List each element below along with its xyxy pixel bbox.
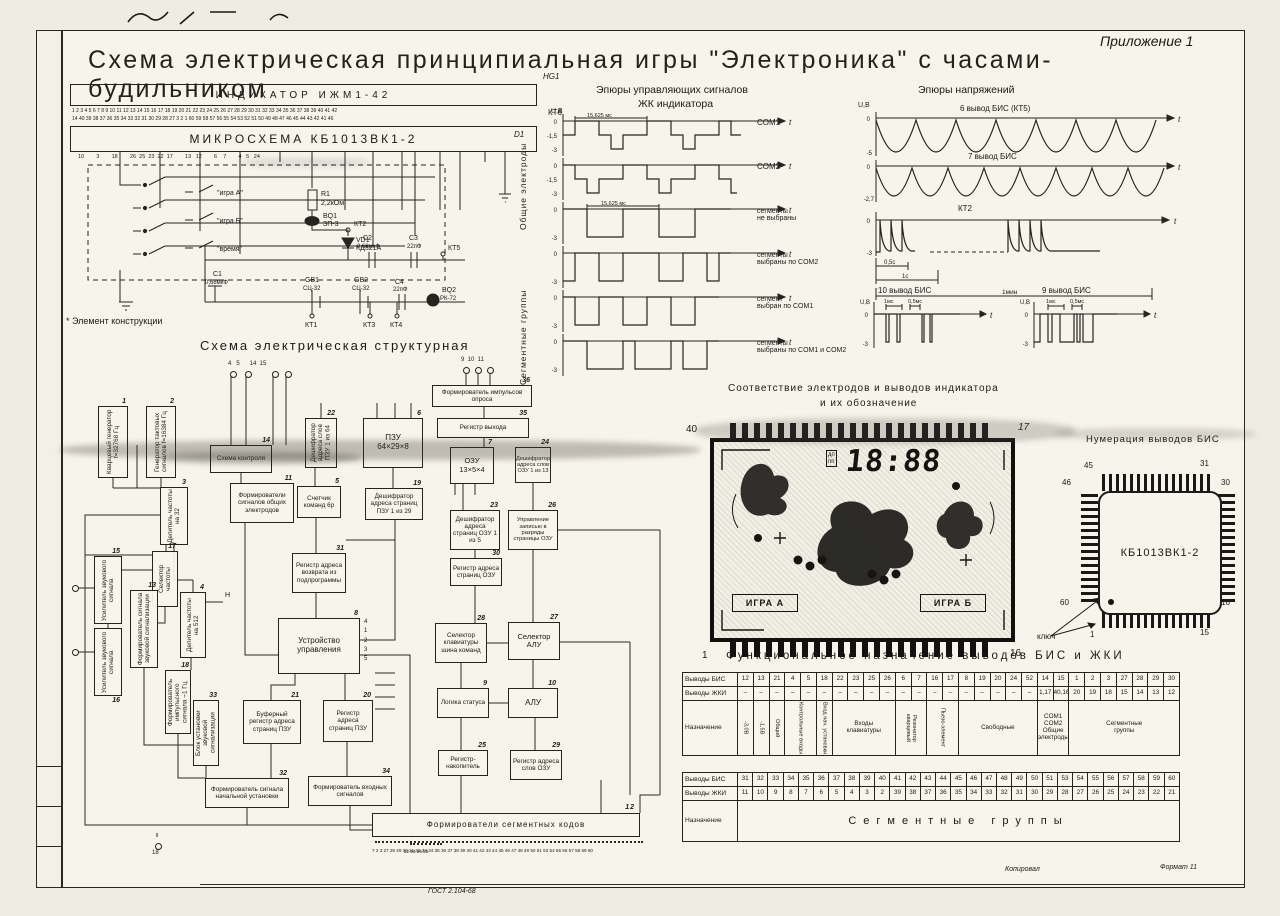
block-accumulator-register: 25Регистр-накопитель bbox=[438, 750, 488, 776]
block-input-signal-former: 34Формирователь входных сигналов bbox=[308, 776, 392, 806]
svg-text:-2,7: -2,7 bbox=[864, 197, 875, 203]
lcd-top-pins bbox=[730, 423, 992, 439]
block-ram-write-control: 26Управление записью в разряды страницы … bbox=[508, 510, 558, 550]
volt-row5-title: 9 вывод БИС bbox=[1042, 286, 1091, 295]
terminal bbox=[72, 585, 79, 592]
svg-text:0: 0 bbox=[554, 120, 558, 126]
terminal bbox=[285, 371, 292, 378]
c1-value: 0,68мкФ bbox=[205, 280, 228, 286]
volt-row4-title: 10 вывод БИС bbox=[878, 286, 931, 295]
volt-row5-wave: U,В 0 -3 1мс 0,5мс t bbox=[1018, 296, 1178, 354]
period-annotation: 15,625 мс bbox=[601, 201, 626, 207]
mark-1s: 1с bbox=[902, 274, 908, 280]
kt1-label: КТ1 bbox=[305, 322, 317, 329]
waveform-label: сегменты не выбраны bbox=[757, 208, 867, 222]
block-clock-generator: 2Генератор тактовых сигналов f=16384 Гц bbox=[146, 406, 176, 478]
terminal bbox=[230, 371, 237, 378]
chip-pin-numbers: 10 3 18 26 25 23 22 17 13 12 6 7 4 5 24 bbox=[78, 154, 518, 160]
svg-text:-3: -3 bbox=[552, 148, 558, 154]
footer-rule bbox=[200, 884, 1245, 885]
svg-text:-3: -3 bbox=[552, 368, 558, 374]
function-table-title: Функциональное назначение выводов БИС и … bbox=[726, 650, 1125, 662]
waveform-label: COM2 bbox=[757, 162, 867, 171]
top-pin-labels: 4 5 14 15 bbox=[228, 361, 266, 367]
svg-text:t: t bbox=[1178, 163, 1181, 172]
block-divider-32: 3Делитель частоты на 32 bbox=[160, 487, 188, 545]
chip-part-number: КБ1013ВК1-2 bbox=[1121, 547, 1200, 559]
pin-function-table-2: Выводы БИС313233343536373839404142434445… bbox=[682, 772, 1180, 842]
common-electrodes-axis-label: Общие электроды bbox=[518, 125, 528, 230]
bq2-ref: BQ2 bbox=[442, 287, 456, 294]
svg-text:0: 0 bbox=[554, 340, 558, 346]
block-buffer-page-register: 21Буферный регистр адреса страниц ПЗУ bbox=[243, 700, 301, 744]
ctrl-waves-title2: ЖК индикатора bbox=[638, 98, 713, 110]
terminal bbox=[245, 371, 252, 378]
lcd-indicator-body: дп пп 18:88 ИГРА А ИГРА Б bbox=[710, 438, 1015, 642]
r1-ref: R1 bbox=[321, 191, 330, 198]
chip-numbering-title: Нумерация выводов БИС bbox=[1086, 434, 1220, 445]
kt4-label: КТ4 bbox=[390, 322, 402, 329]
c4-ref: C4 bbox=[395, 279, 404, 286]
chip-pin-30: 30 bbox=[1221, 478, 1230, 487]
volt-waves-yaxis: U,В bbox=[858, 102, 870, 109]
block-alarm-setting: 33Блок установки звуковой сигнализации bbox=[193, 700, 219, 766]
principal-circuit-canvas: "игра А" "игра Б" "время" R1 2,2кОм BQ1 … bbox=[65, 150, 545, 330]
svg-text:t: t bbox=[990, 311, 993, 320]
chip-key-dot bbox=[1108, 599, 1114, 605]
period-annotation: 15,625 мс bbox=[587, 113, 612, 119]
volt-row3-title: КТ2 bbox=[958, 204, 972, 213]
c3-value: 22пФ bbox=[407, 244, 422, 250]
block-reset-signal-former: 32Формирователь сигнала начальной устано… bbox=[205, 778, 289, 808]
lcd-game-b-label: ИГРА Б bbox=[920, 594, 986, 612]
indicator-pin-row-bottom: 14 40 39 38 37 36 35 34 33 32 31 30 29 2… bbox=[72, 116, 534, 122]
block-rom-page-register: 20Регистр адреса страниц ПЗУ bbox=[323, 700, 373, 742]
block-alu: 10АЛУ bbox=[508, 688, 558, 718]
svg-text:0: 0 bbox=[1025, 313, 1029, 319]
mark-1ms: 1мс bbox=[1046, 299, 1056, 305]
terminal bbox=[475, 367, 482, 374]
lcd-pin-40: 40 bbox=[686, 424, 697, 435]
terminal-row bbox=[410, 843, 442, 845]
svg-text:-1,5: -1,5 bbox=[547, 178, 558, 184]
construction-note: * Элемент конструкции bbox=[66, 316, 162, 326]
block-return-address-register: 31Регистр адреса возврата из подпрограмм… bbox=[292, 553, 346, 593]
block-rom: 6ПЗУ 64×29×8 bbox=[363, 418, 423, 468]
mark-1min: 1мин bbox=[1002, 289, 1018, 296]
gb1-value: СЦ-32 bbox=[303, 286, 321, 292]
block-alu-selector: 27Селектор АЛУ bbox=[508, 622, 560, 660]
lcd-game-a-label: ИГРА А bbox=[732, 594, 798, 612]
bq1-value: ЗП-3 bbox=[323, 221, 339, 228]
volt-row1-wave: 0 -5 t bbox=[862, 110, 1197, 158]
chip-pin-60: 60 bbox=[1060, 598, 1069, 607]
block-rom-word-decoder: 22Дешифратор адреса слов ПЗУ 1 из 64 bbox=[305, 418, 337, 468]
lcd-pin-1: 1 bbox=[702, 650, 708, 661]
block-divider-512: 4Делитель частоты на 512 bbox=[180, 592, 206, 658]
bq1-ref: BQ1 bbox=[323, 213, 337, 220]
block-control-unit: 8Устройство управления bbox=[278, 618, 360, 674]
c4-value: 22пФ bbox=[393, 287, 408, 293]
svg-text:-1,5: -1,5 bbox=[547, 134, 558, 140]
svg-text:0: 0 bbox=[554, 296, 558, 302]
chip-pins-top bbox=[1102, 474, 1214, 491]
format-label: Формат 11 bbox=[1160, 864, 1197, 871]
c2-value: 0,68мкФ bbox=[357, 244, 380, 250]
pin18-label: 18 bbox=[152, 850, 159, 856]
mark-1ms: 1мс bbox=[884, 299, 894, 305]
svg-text:-3: -3 bbox=[552, 324, 558, 330]
volt-row2-wave: 0 -2,7 t bbox=[862, 158, 1197, 204]
switch-label-game-b: "игра Б" bbox=[217, 218, 243, 225]
svg-text:0: 0 bbox=[554, 252, 558, 258]
terminal bbox=[155, 843, 162, 850]
chip-pin-31: 31 bbox=[1200, 459, 1209, 468]
switch-label-time: "время" bbox=[217, 246, 243, 253]
terminal-row bbox=[375, 841, 643, 843]
terminal bbox=[272, 371, 279, 378]
block-ram-page-decoder: 23Дешифратор адреса страниц ОЗУ 1 из 5 bbox=[450, 510, 500, 550]
ctrl-waves-yaxis: U,В bbox=[551, 108, 563, 115]
lcd-pin-17: 17 bbox=[1018, 422, 1029, 433]
volt-waves-title: Эпюры напряжений bbox=[918, 84, 1015, 96]
correspondence-title1: Соответствие электродов и выводов индика… bbox=[728, 383, 999, 394]
lcd-mode-indicator: дп пп bbox=[826, 450, 837, 467]
chip-key-label: ключ bbox=[1037, 632, 1055, 641]
block-ram-word-decoder: 24Дешифратор адреса слов ОЗУ 1 из 13 bbox=[515, 447, 551, 483]
svg-text:0: 0 bbox=[554, 208, 558, 214]
c2-ref: C2 bbox=[363, 235, 372, 242]
correspondence-title2: и их обозначение bbox=[820, 398, 917, 409]
margin-divider bbox=[36, 846, 62, 847]
block-command-counter: 5Счетчик команд 6р bbox=[297, 486, 341, 518]
block-keyboard-selector: 28Селектор клавиатуры шина команд bbox=[435, 623, 487, 663]
terminal bbox=[72, 649, 79, 656]
gb2-ref: GB2 bbox=[354, 277, 368, 284]
block-quartz-generator: 1Кварцевый генератор f=32768 Гц bbox=[98, 406, 128, 478]
volt-row2-title: 7 вывод БИС bbox=[968, 152, 1017, 161]
block-audio-amplifier-2: 16Усилитель звукового сигнала bbox=[94, 628, 122, 696]
block-control-circuit: 14Схема контроля bbox=[210, 445, 272, 473]
svg-text:-3: -3 bbox=[552, 236, 558, 242]
terminal bbox=[463, 367, 470, 374]
block-output-register: 35Регистр выхода bbox=[437, 418, 529, 438]
ctrl-waves-title1: Эпюры управляющих сигналов bbox=[596, 84, 748, 96]
h-signal-label: Н bbox=[225, 592, 230, 599]
lcd-clock-digits: 18:88 bbox=[844, 444, 943, 479]
c3-ref: C3 bbox=[409, 235, 418, 242]
block-ram: 7ОЗУ 13×5×4 bbox=[450, 447, 494, 484]
chip-pin-16: 16 bbox=[1221, 598, 1230, 607]
right-pin-labels: 4 1 2 3 5 bbox=[364, 618, 367, 664]
gost-label: ГОСТ 2.104-68 bbox=[428, 888, 476, 895]
mark-05ms: 0,5мс bbox=[1070, 299, 1084, 305]
r1-value: 2,2кОм bbox=[321, 200, 344, 207]
mark-05s: 0,5с bbox=[884, 260, 895, 266]
svg-text:0: 0 bbox=[867, 165, 871, 171]
waveform-label: сегменты выбраны по COM2 bbox=[757, 252, 877, 266]
block-ram-page-register: 30Регистр адреса страниц ОЗУ bbox=[450, 558, 502, 586]
volt-row1-title: 6 вывод БИС (КТ5) bbox=[960, 104, 1030, 113]
waveform-label: сегменты выбраны по COM1 и COM2 bbox=[757, 340, 882, 354]
svg-text:0: 0 bbox=[554, 164, 558, 170]
mid-pin-labels: 9 10 11 bbox=[461, 357, 484, 363]
switch-label-game-a: "игра А" bbox=[217, 190, 243, 197]
indicator-pin-row-top: 1 2 3 4 5 6 7 8 9 10 11 12 13 14 15 16 1… bbox=[72, 108, 534, 114]
kt2-label: КТ2 bbox=[354, 221, 366, 228]
indicator-refdes: HG1 bbox=[543, 72, 559, 81]
copied-by-label: Копировал bbox=[1005, 866, 1040, 873]
svg-text:-5: -5 bbox=[867, 151, 873, 157]
svg-text:U,В: U,В bbox=[1020, 300, 1030, 306]
chip-pins-left bbox=[1081, 494, 1098, 606]
structural-title: Схема электрическая структурная bbox=[200, 338, 470, 353]
svg-text:-3: -3 bbox=[1023, 342, 1029, 348]
bq2-value: РК-72 bbox=[440, 296, 457, 302]
margin-divider bbox=[36, 766, 62, 767]
svg-text:t: t bbox=[1174, 217, 1177, 226]
block-status-logic: 9Логика статуса bbox=[437, 688, 489, 718]
svg-text:t: t bbox=[1178, 115, 1181, 124]
terminal bbox=[487, 367, 494, 374]
chip-body: КБ1013ВК1-2 bbox=[1098, 491, 1222, 615]
chip-pin-45: 45 bbox=[1084, 461, 1093, 470]
block-1hz-pulse-former: 18Формирователь импульсного сигнала ~1 Г… bbox=[165, 670, 191, 734]
block-common-electrode-formers: 11Формирователи сигналов общих электродо… bbox=[230, 483, 294, 523]
svg-text:0: 0 bbox=[865, 313, 869, 319]
block-audio-amplifier-1: 15Усилитель звукового сигнала bbox=[94, 556, 122, 624]
waveform-label: сегмент выбран по COM1 bbox=[757, 296, 877, 310]
block-poll-pulse-former: 36Формирователь импульсов опроса bbox=[432, 385, 532, 407]
bottom-pin-labels: 7 2 3 27 28 29 30 31 32 33 34 35 36 37 3… bbox=[372, 848, 646, 853]
svg-text:-3: -3 bbox=[552, 192, 558, 198]
block-sound-signal-former: 13Формирователь сигнала звуковой сигнали… bbox=[130, 590, 158, 668]
mark-05ms: 0,5мс bbox=[908, 299, 922, 305]
svg-text:-3: -3 bbox=[552, 280, 558, 286]
kt5-label: КТ5 bbox=[448, 245, 460, 252]
waveform-label: COM1 bbox=[757, 118, 867, 127]
svg-text:0: 0 bbox=[867, 117, 871, 123]
chip-pin-15: 15 bbox=[1200, 628, 1209, 637]
segment-groups-axis-label: Сегментные группы bbox=[518, 235, 528, 385]
block-rom-page-decoder: 19Дешифратор адреса страниц ПЗУ 1 из 29 bbox=[365, 488, 423, 520]
svg-text:t: t bbox=[1154, 311, 1157, 320]
left-margin-strip bbox=[36, 30, 62, 888]
chip-pin-1: 1 bbox=[1090, 630, 1094, 639]
margin-divider bbox=[36, 806, 62, 807]
kt3-label: КТ3 bbox=[363, 322, 375, 329]
gb2-value: СЦ-32 bbox=[352, 286, 370, 292]
block-segment-code-formers: 12Формирователи сегментных кодов bbox=[372, 813, 640, 837]
pin-function-table-1: Выводы БИС121321451822232526671617819202… bbox=[682, 672, 1180, 756]
microchip-box: МИКРОСХЕМА КБ1013ВК1-2 bbox=[70, 126, 537, 152]
svg-text:0: 0 bbox=[867, 219, 871, 225]
chip-pin-46: 46 bbox=[1062, 478, 1071, 487]
gb1-ref: GB1 bbox=[305, 277, 319, 284]
c1-ref: C1 bbox=[213, 271, 222, 278]
block-ram-word-register: 29Регистр адреса слов ОЗУ bbox=[510, 750, 562, 780]
chip-refdes: D1 bbox=[514, 130, 524, 139]
scan-scribbles bbox=[120, 4, 320, 30]
